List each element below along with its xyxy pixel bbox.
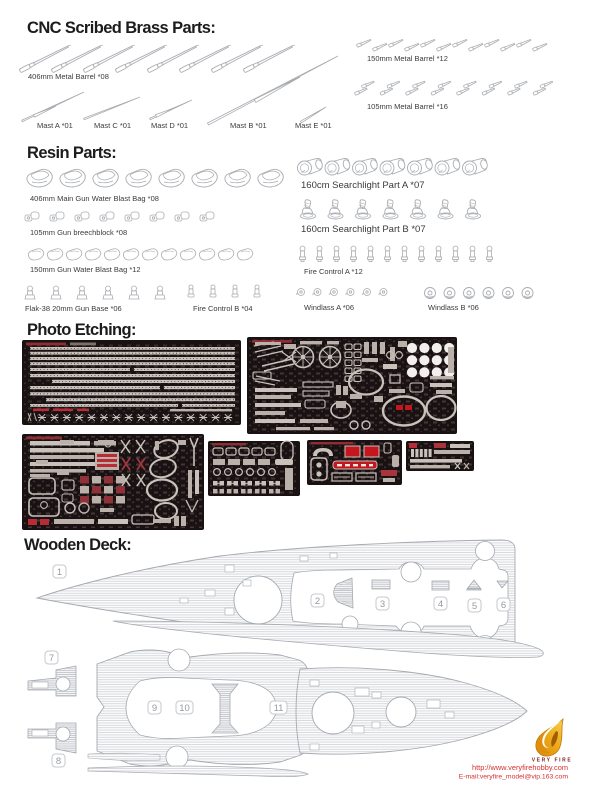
svg-text:Mast C *01: Mast C *01 [94,121,131,130]
svg-text:11: 11 [274,703,284,714]
svg-text:5: 5 [472,601,477,612]
svg-text:Mast E *01: Mast E *01 [295,121,332,130]
svg-text:Mast B *01: Mast B *01 [230,121,267,130]
svg-text:Fire Control B *04: Fire Control B *04 [193,304,253,313]
svg-text:9: 9 [152,703,157,714]
svg-text:CNC Scribed Brass Parts:: CNC Scribed Brass Parts: [27,19,215,37]
svg-text:150mm Metal Barrel *12: 150mm Metal Barrel *12 [367,54,448,63]
svg-text:150mm Gun Water Blast Bag *12: 150mm Gun Water Blast Bag *12 [30,265,141,274]
svg-text:160cm Searchlight Part A *07: 160cm Searchlight Part A *07 [301,180,425,191]
svg-text:Mast A *01: Mast A *01 [37,121,73,130]
svg-text:7: 7 [49,653,54,664]
svg-text:6: 6 [501,600,506,611]
svg-text:160cm Searchlight Part B *07: 160cm Searchlight Part B *07 [301,224,426,235]
svg-text:10: 10 [179,703,190,714]
svg-text:105mm Gun breechblock *08: 105mm Gun breechblock *08 [30,228,127,237]
svg-text:Mast D *01: Mast D *01 [151,121,188,130]
svg-text:2: 2 [315,596,320,607]
svg-text:4: 4 [438,599,443,610]
svg-text:Wooden Deck:: Wooden Deck: [24,536,131,554]
svg-text:http://www.veryfirehobby.com: http://www.veryfirehobby.com [472,763,568,772]
svg-text:8: 8 [56,756,61,767]
svg-text:Photo Etching:: Photo Etching: [27,321,136,339]
svg-text:1: 1 [57,567,62,578]
svg-text:105mm Metal Barrel *16: 105mm Metal Barrel *16 [367,102,448,111]
svg-text:406mm Metal Barrel *08: 406mm Metal Barrel *08 [28,72,109,81]
svg-text:Fire Control A *12: Fire Control A *12 [304,267,363,276]
svg-text:3: 3 [380,599,385,610]
svg-text:Windlass A *06: Windlass A *06 [304,303,354,312]
svg-text:406mm Main Gun Water Blast Bag: 406mm Main Gun Water Blast Bag *08 [30,194,159,203]
svg-text:E-mail:veryfire_model@vip.163.: E-mail:veryfire_model@vip.163.com [459,774,569,781]
svg-text:Windlass B *06: Windlass B *06 [428,303,479,312]
svg-text:Flak-38 20mm Gun Base *06: Flak-38 20mm Gun Base *06 [25,304,122,313]
svg-text:Resin Parts:: Resin Parts: [27,144,116,162]
